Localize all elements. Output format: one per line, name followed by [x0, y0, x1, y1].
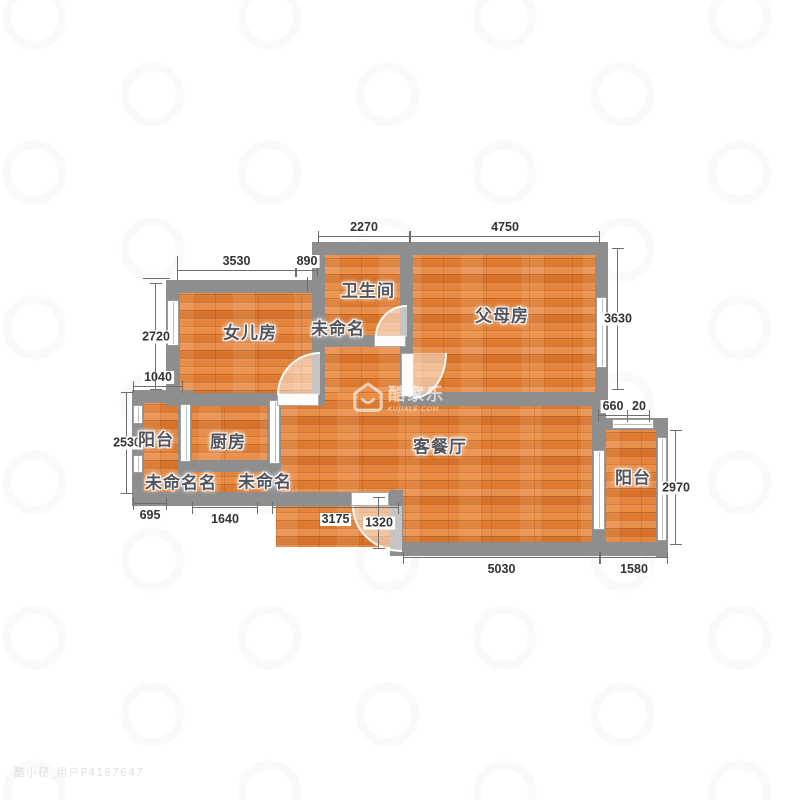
room-label-balcony-left: 阳台 — [138, 426, 174, 451]
room-label-unnamed-middle: 未命名 — [238, 468, 292, 493]
dim-right-step-b: 20 — [628, 415, 650, 416]
extension-line — [307, 277, 308, 292]
dim-label: 695 — [138, 509, 163, 522]
dim-right-step-a: 660 — [598, 415, 628, 416]
dim-entry-step: 1320 — [378, 497, 379, 549]
room-label-parents-room: 父母房 — [475, 302, 529, 327]
wall-bottom-main — [390, 542, 668, 556]
window-balcony-left-b — [133, 455, 143, 473]
dim-label: 4750 — [489, 221, 521, 234]
dim-parents-height: 3630 — [617, 248, 618, 390]
window-living-balcony — [593, 450, 605, 530]
dim-label: 2720 — [140, 330, 172, 343]
kujiale-logo-icon — [352, 382, 384, 418]
dim-bath-top-width: 2270 — [318, 236, 410, 237]
dim-label: 3175 — [320, 513, 352, 526]
room-label-living-dining: 客餐厅 — [413, 433, 467, 458]
dim-label: 3530 — [221, 255, 253, 268]
user-watermark: 酷小秘_用户P4187647 — [14, 764, 144, 780]
room-label-unnamed-left: 未命名名 — [145, 469, 217, 494]
dim-label: 20 — [630, 400, 648, 413]
dim-balcony-right-bottom: 1580 — [600, 557, 668, 558]
dim-parents-width: 4750 — [410, 236, 600, 237]
dim-label: 660 — [601, 400, 626, 413]
door-slab-bathroom — [375, 336, 405, 346]
wall-daughter-top — [166, 280, 325, 293]
room-label-hallway: 未命名 — [311, 315, 365, 340]
room-label-balcony-right: 阳台 — [615, 464, 651, 489]
dim-corridor-bottom: 1640 — [192, 507, 258, 508]
door-slab-entrance — [352, 493, 388, 505]
extension-line — [143, 278, 170, 279]
dim-label: 1580 — [618, 563, 650, 576]
dim-label: 1320 — [363, 517, 395, 530]
dim-label: 2270 — [348, 221, 380, 234]
dim-label: 1640 — [209, 513, 241, 526]
dim-label: 3630 — [602, 313, 634, 326]
brand-watermark: 酷家乐 KUJIALE.COM — [352, 382, 445, 418]
window-parents-right — [596, 297, 607, 368]
dim-balcony-right-height: 2970 — [675, 430, 676, 545]
dim-daughter-height: 2720 — [155, 283, 156, 390]
dim-corner-left: 695 — [133, 503, 167, 504]
door-slab-daughter — [278, 394, 318, 405]
dim-label: 890 — [295, 255, 320, 268]
door-balcony-kitchen — [180, 404, 191, 462]
floorplan: 2270 4750 3530 890 1040 660 20 695 1640 … — [0, 0, 800, 800]
dim-daughter-width: 3530 — [177, 270, 296, 271]
room-label-daughter-room: 女儿房 — [223, 319, 277, 344]
door-kitchen-living — [269, 400, 280, 464]
dim-living-bottom: 5030 — [403, 557, 600, 558]
brand-name: 酷家乐 — [388, 387, 445, 404]
brand-domain: KUJIALE.COM — [388, 406, 445, 413]
dim-label: 1040 — [142, 371, 174, 384]
room-label-kitchen: 厨房 — [210, 428, 246, 453]
window-balcony-right-top — [612, 419, 654, 429]
dim-balcony-left-height: 2530 — [126, 392, 127, 494]
window-balcony-left-a — [133, 405, 143, 424]
room-label-bathroom: 卫生间 — [341, 277, 395, 302]
dim-label: 2970 — [660, 481, 692, 494]
wall-top-main — [312, 242, 608, 255]
dim-label: 5030 — [486, 563, 518, 576]
dim-balcony-left-top: 1040 — [133, 386, 183, 387]
dim-living-lower-left: 3175 — [272, 507, 399, 508]
dim-bath-left-offset: 890 — [296, 270, 318, 271]
